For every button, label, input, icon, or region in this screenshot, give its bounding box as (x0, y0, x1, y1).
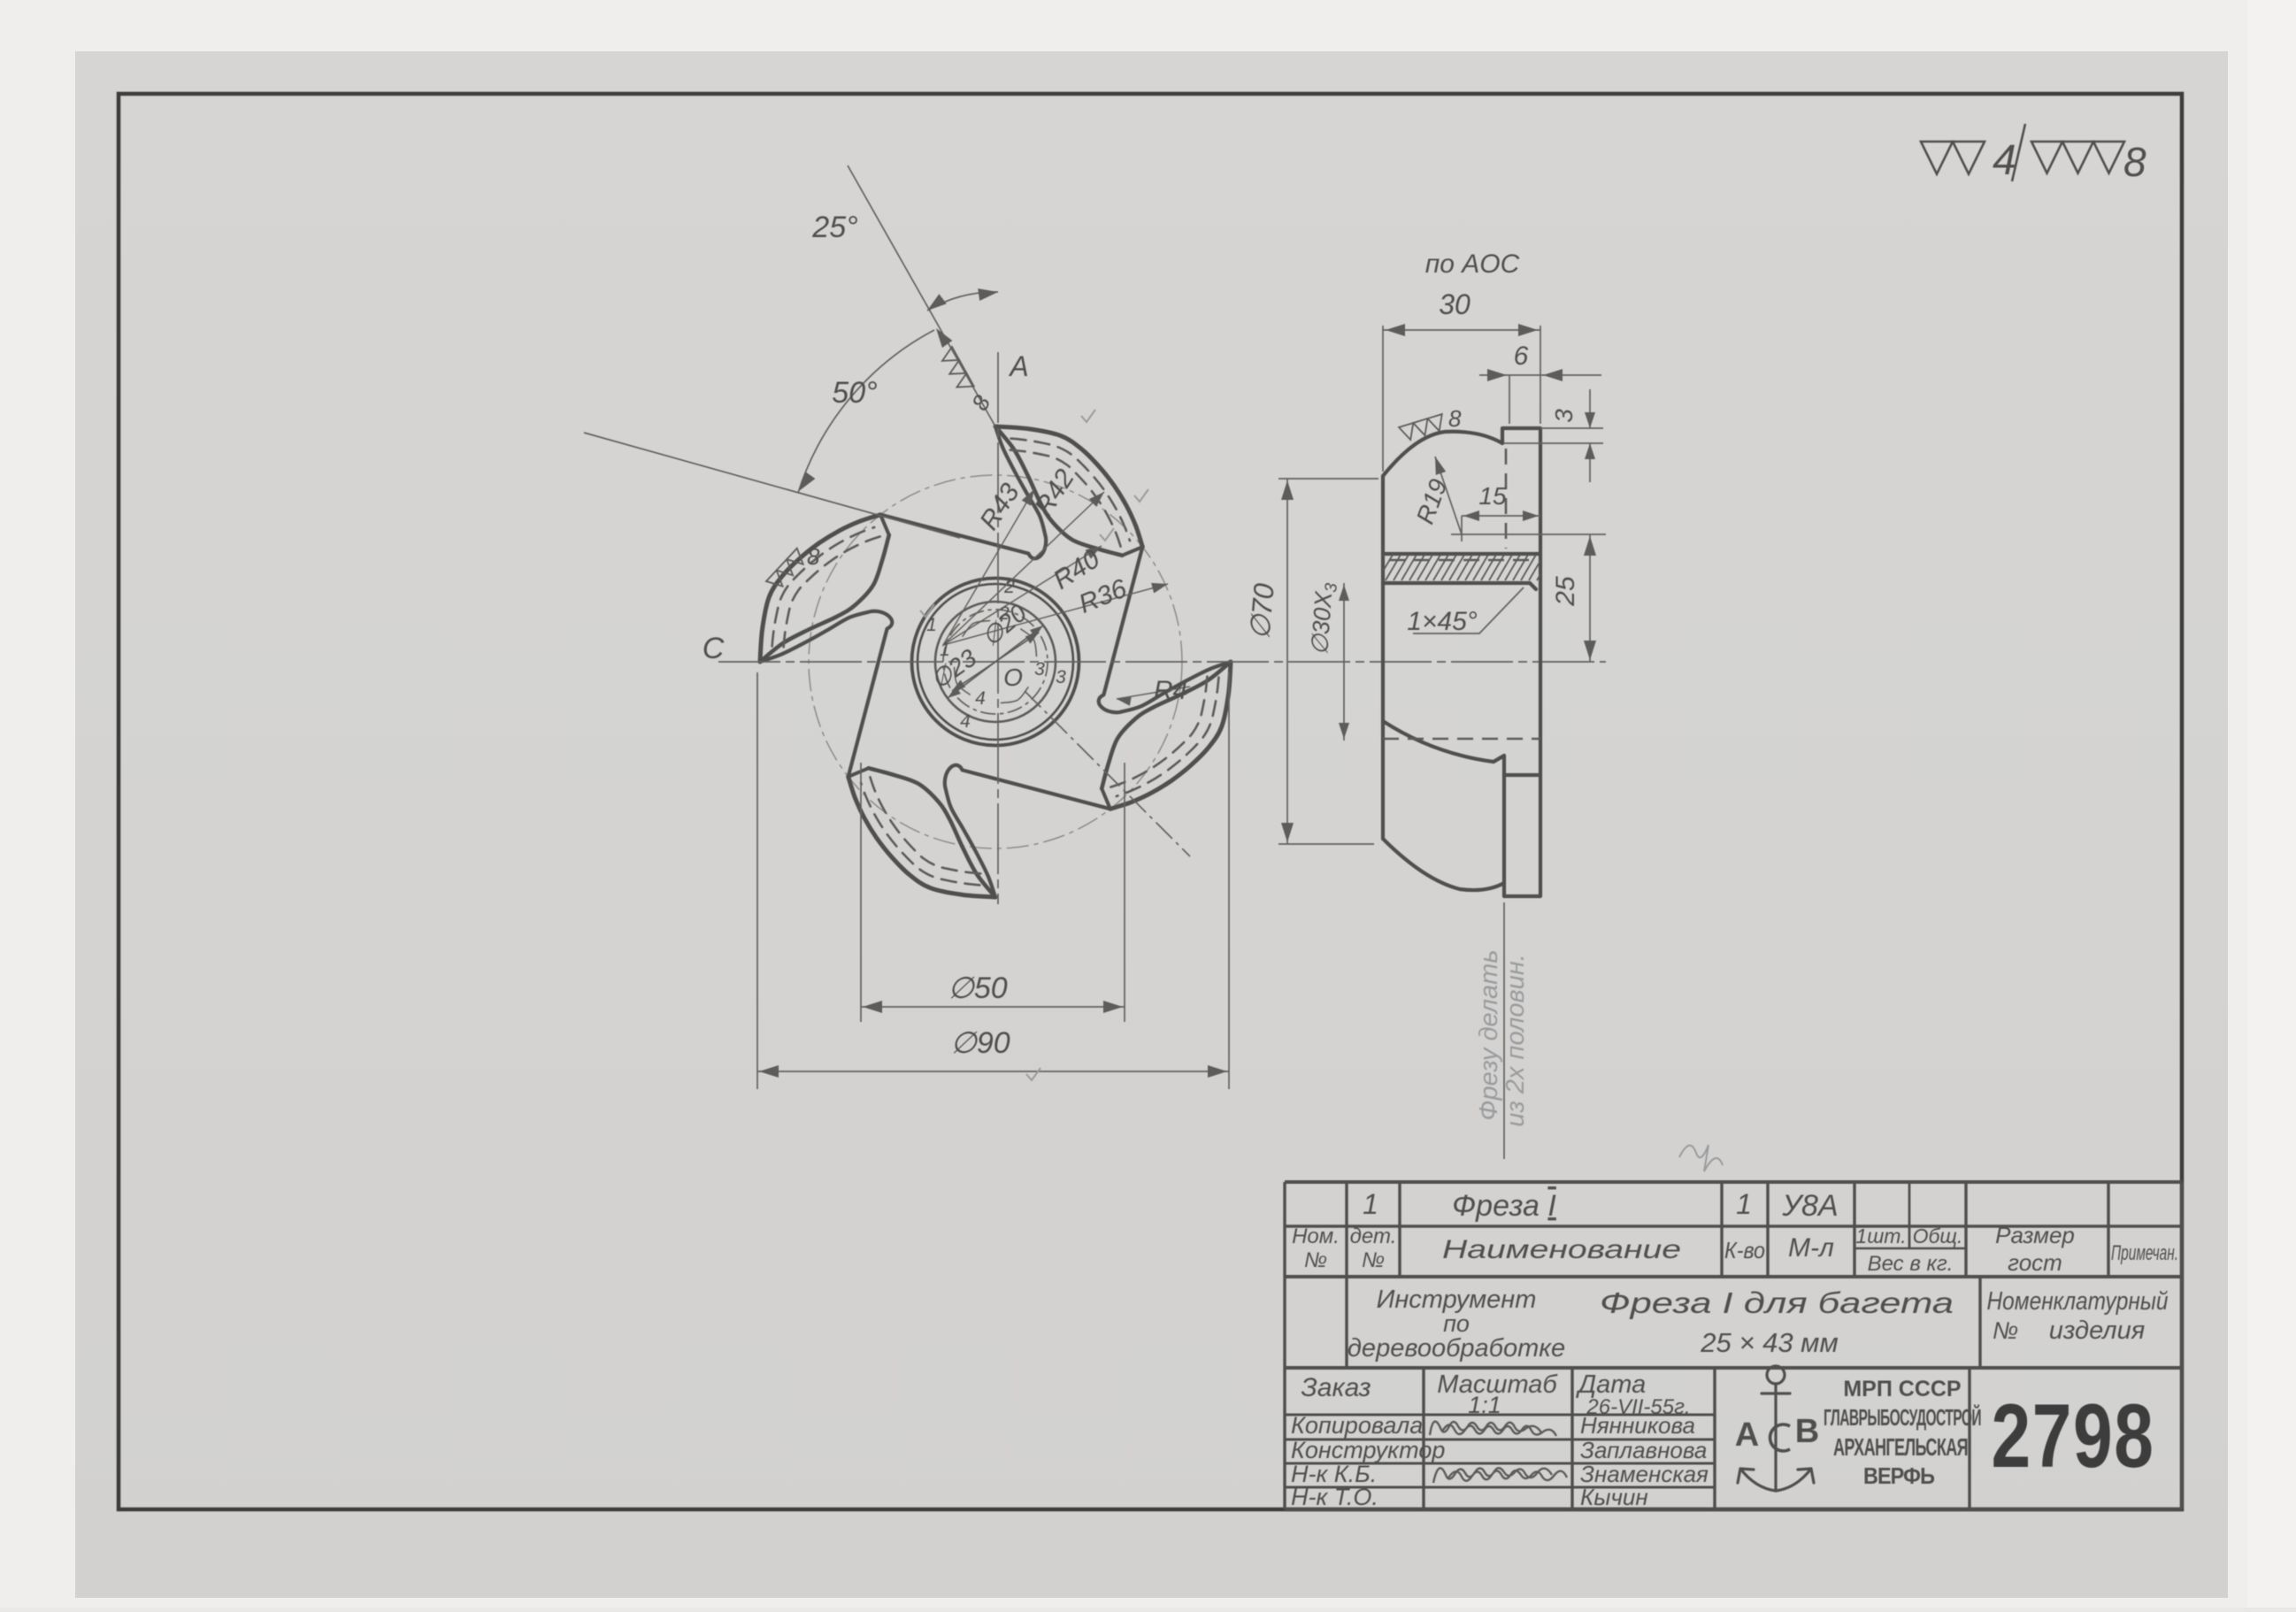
svg-text:Фреза I для багета: Фреза I для багета (1600, 1286, 1954, 1319)
svg-text:Размер: Размер (1995, 1222, 2075, 1248)
svg-text:Вес в кг.: Вес в кг. (1868, 1252, 1954, 1276)
svg-text:50°: 50° (832, 376, 877, 410)
svg-text:1×45°: 1×45° (1407, 607, 1478, 636)
svg-text:гост: гост (2008, 1249, 2062, 1276)
svg-text:Нянникова: Нянникова (1580, 1412, 1695, 1439)
svg-text:1: 1 (1363, 1188, 1378, 1220)
svg-text:R4: R4 (1154, 676, 1187, 705)
svg-text:∅70: ∅70 (1243, 582, 1279, 641)
svg-text:8: 8 (807, 543, 820, 570)
svg-text:К-во: К-во (1724, 1237, 1765, 1263)
svg-text:15: 15 (1478, 482, 1507, 510)
svg-text:по AOC: по AOC (1425, 249, 1520, 279)
svg-text:№: № (1304, 1248, 1327, 1272)
svg-text:Заплавнова: Заплавнова (1580, 1437, 1707, 1463)
svg-text:25 × 43 мм: 25 × 43 мм (1700, 1327, 1838, 1358)
svg-text:25: 25 (1551, 576, 1580, 607)
svg-text:3: 3 (1034, 659, 1045, 679)
svg-text:30: 30 (1439, 288, 1471, 320)
svg-text:O: O (1003, 664, 1023, 691)
svg-text:из 2х половин.: из 2х половин. (1501, 954, 1530, 1127)
svg-text:1шт.: 1шт. (1855, 1224, 1906, 1247)
svg-text:1:1: 1:1 (1468, 1392, 1501, 1418)
svg-text:Фрезу делать: Фрезу делать (1475, 949, 1503, 1120)
svg-text:Копировала: Копировала (1291, 1412, 1423, 1439)
svg-text:дет.: дет. (1350, 1224, 1397, 1248)
svg-text:∅90: ∅90 (950, 1026, 1010, 1060)
svg-text:№: № (1362, 1248, 1385, 1272)
svg-text:4: 4 (960, 711, 971, 732)
svg-text:Н-к Т.О.: Н-к Т.О. (1291, 1484, 1378, 1510)
svg-text:Заказ: Заказ (1301, 1373, 1371, 1402)
svg-text:М-л: М-л (1788, 1233, 1834, 1263)
svg-text:изделия: изделия (2049, 1316, 2145, 1345)
svg-text:А: А (1735, 1416, 1759, 1454)
svg-text:Общ.: Общ. (1913, 1224, 1963, 1247)
svg-text:Примечан.: Примечан. (2111, 1241, 2178, 1265)
svg-text:A: A (1008, 350, 1028, 382)
svg-text:∅50: ∅50 (948, 971, 1008, 1005)
svg-text:8: 8 (2123, 139, 2146, 185)
svg-text:У8А: У8А (1781, 1189, 1838, 1223)
svg-text:по: по (1443, 1310, 1470, 1337)
svg-text:25°: 25° (811, 211, 857, 244)
svg-text:Кычин: Кычин (1580, 1484, 1648, 1510)
svg-text:Конструктор: Конструктор (1291, 1437, 1445, 1463)
svg-text:8: 8 (1448, 405, 1462, 432)
svg-text:1: 1 (1736, 1188, 1752, 1220)
svg-text:1: 1 (940, 640, 950, 660)
svg-text:Фреза I: Фреза I (1452, 1189, 1556, 1223)
svg-text:Наименование: Наименование (1442, 1235, 1681, 1264)
svg-text:МРП СССР: МРП СССР (1843, 1377, 1961, 1401)
svg-text:В: В (1795, 1413, 1818, 1450)
svg-text:2: 2 (998, 603, 1010, 624)
svg-text:4: 4 (975, 688, 986, 709)
svg-text:2: 2 (1003, 577, 1015, 597)
svg-text:ВЕРФЬ: ВЕРФЬ (1863, 1462, 1934, 1489)
svg-text:C: C (703, 632, 725, 665)
svg-text:№: № (1993, 1317, 2018, 1344)
svg-text:3: 3 (1550, 409, 1578, 423)
svg-text:3: 3 (1056, 667, 1066, 687)
svg-text:6: 6 (1514, 342, 1529, 371)
svg-text:2798: 2798 (1992, 1386, 2155, 1486)
svg-text:Номенклатурный: Номенклатурный (1987, 1287, 2169, 1316)
svg-text:деревообработке: деревообработке (1348, 1334, 1565, 1363)
svg-text:ГЛАВРЫБОСУДОСТРОЙ: ГЛАВРЫБОСУДОСТРОЙ (1824, 1404, 1981, 1431)
svg-text:Ном.: Ном. (1292, 1224, 1340, 1248)
svg-text:1: 1 (926, 615, 937, 635)
svg-text:АРХАНГЕЛЬСКАЯ: АРХАНГЕЛЬСКАЯ (1833, 1433, 1968, 1461)
